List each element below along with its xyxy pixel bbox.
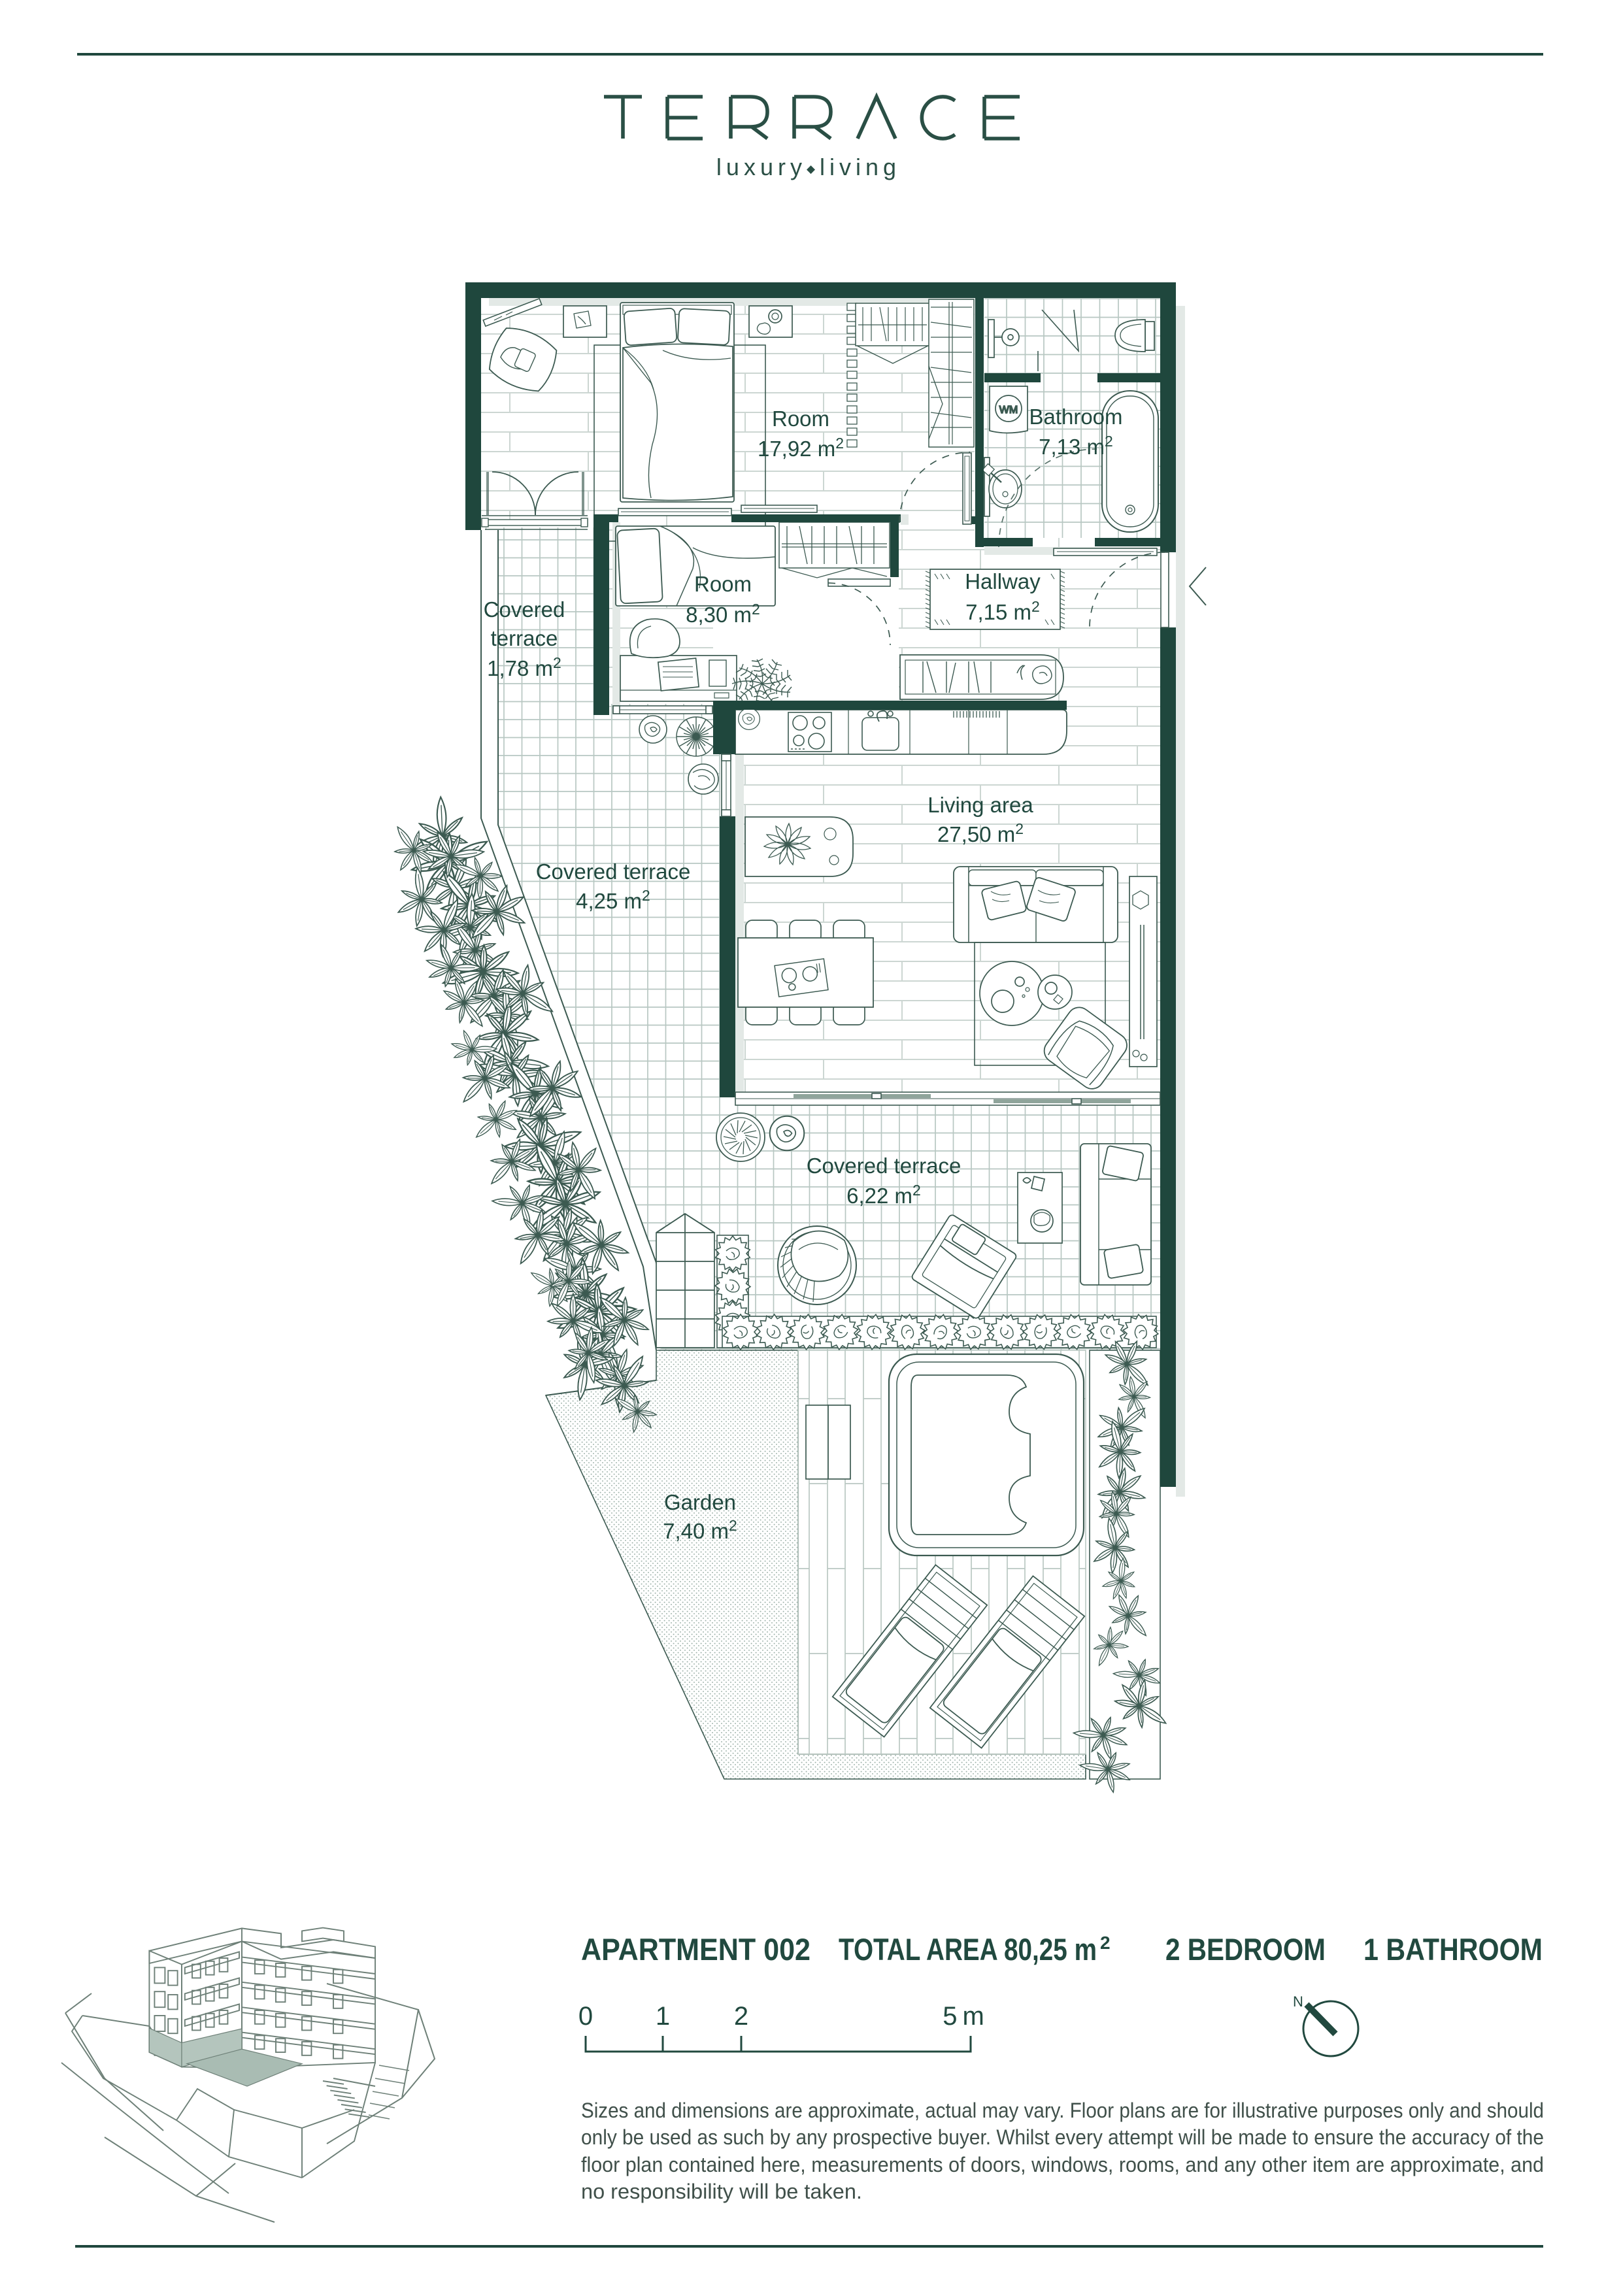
svg-text:APARTMENT 002: APARTMENT 002 bbox=[581, 1932, 811, 1967]
svg-text:0: 0 bbox=[578, 2002, 593, 2031]
svg-text:6,22 m2: 6,22 m2 bbox=[846, 1182, 921, 1208]
svg-text:1 BATHROOM: 1 BATHROOM bbox=[1363, 1932, 1543, 1967]
svg-text:Room: Room bbox=[694, 572, 752, 596]
svg-text:7,40 m2: 7,40 m2 bbox=[663, 1517, 737, 1543]
svg-text:Covered terrace: Covered terrace bbox=[536, 859, 691, 884]
svg-text:17,92 m2: 17,92 m2 bbox=[758, 435, 844, 461]
svg-text:TOTAL AREA 80,25 m: TOTAL AREA 80,25 m bbox=[839, 1932, 1097, 1967]
svg-text:5 m: 5 m bbox=[943, 2002, 984, 2031]
svg-text:floor plan contained here, mea: floor plan contained here, measurements … bbox=[581, 2153, 1544, 2176]
svg-text:1,78 m2: 1,78 m2 bbox=[487, 654, 561, 680]
svg-text:N: N bbox=[1293, 1993, 1303, 2010]
svg-text:no responsibility will be take: no responsibility will be taken. bbox=[581, 2180, 862, 2203]
svg-text:only be used as such by any pr: only be used as such by any prospective … bbox=[581, 2125, 1544, 2149]
svg-text:Sizes and dimensions are appro: Sizes and dimensions are approximate, ac… bbox=[581, 2099, 1544, 2122]
svg-text:8,30 m2: 8,30 m2 bbox=[686, 601, 760, 627]
svg-text:7,15 m2: 7,15 m2 bbox=[965, 598, 1040, 624]
svg-text:WM: WM bbox=[999, 405, 1018, 416]
svg-text:2: 2 bbox=[1100, 1933, 1111, 1953]
svg-text:4,25 m2: 4,25 m2 bbox=[576, 887, 650, 913]
svg-text:27,50 m2: 27,50 m2 bbox=[937, 820, 1024, 846]
svg-text:Garden: Garden bbox=[664, 1490, 736, 1514]
svg-text:Living area: Living area bbox=[927, 793, 1033, 817]
svg-text:7,13 m2: 7,13 m2 bbox=[1039, 433, 1113, 459]
svg-text:2: 2 bbox=[734, 2002, 748, 2031]
svg-text:1: 1 bbox=[656, 2002, 670, 2031]
svg-text:Hallway: Hallway bbox=[965, 569, 1041, 593]
svg-text:Covered terrace: Covered terrace bbox=[807, 1154, 961, 1178]
svg-text:2 BEDROOM: 2 BEDROOM bbox=[1165, 1932, 1326, 1967]
svg-text:Bathroom: Bathroom bbox=[1029, 405, 1122, 429]
svg-text:Covered: Covered bbox=[484, 597, 565, 622]
svg-text:terrace: terrace bbox=[491, 626, 558, 650]
svg-text:Room: Room bbox=[772, 407, 829, 431]
